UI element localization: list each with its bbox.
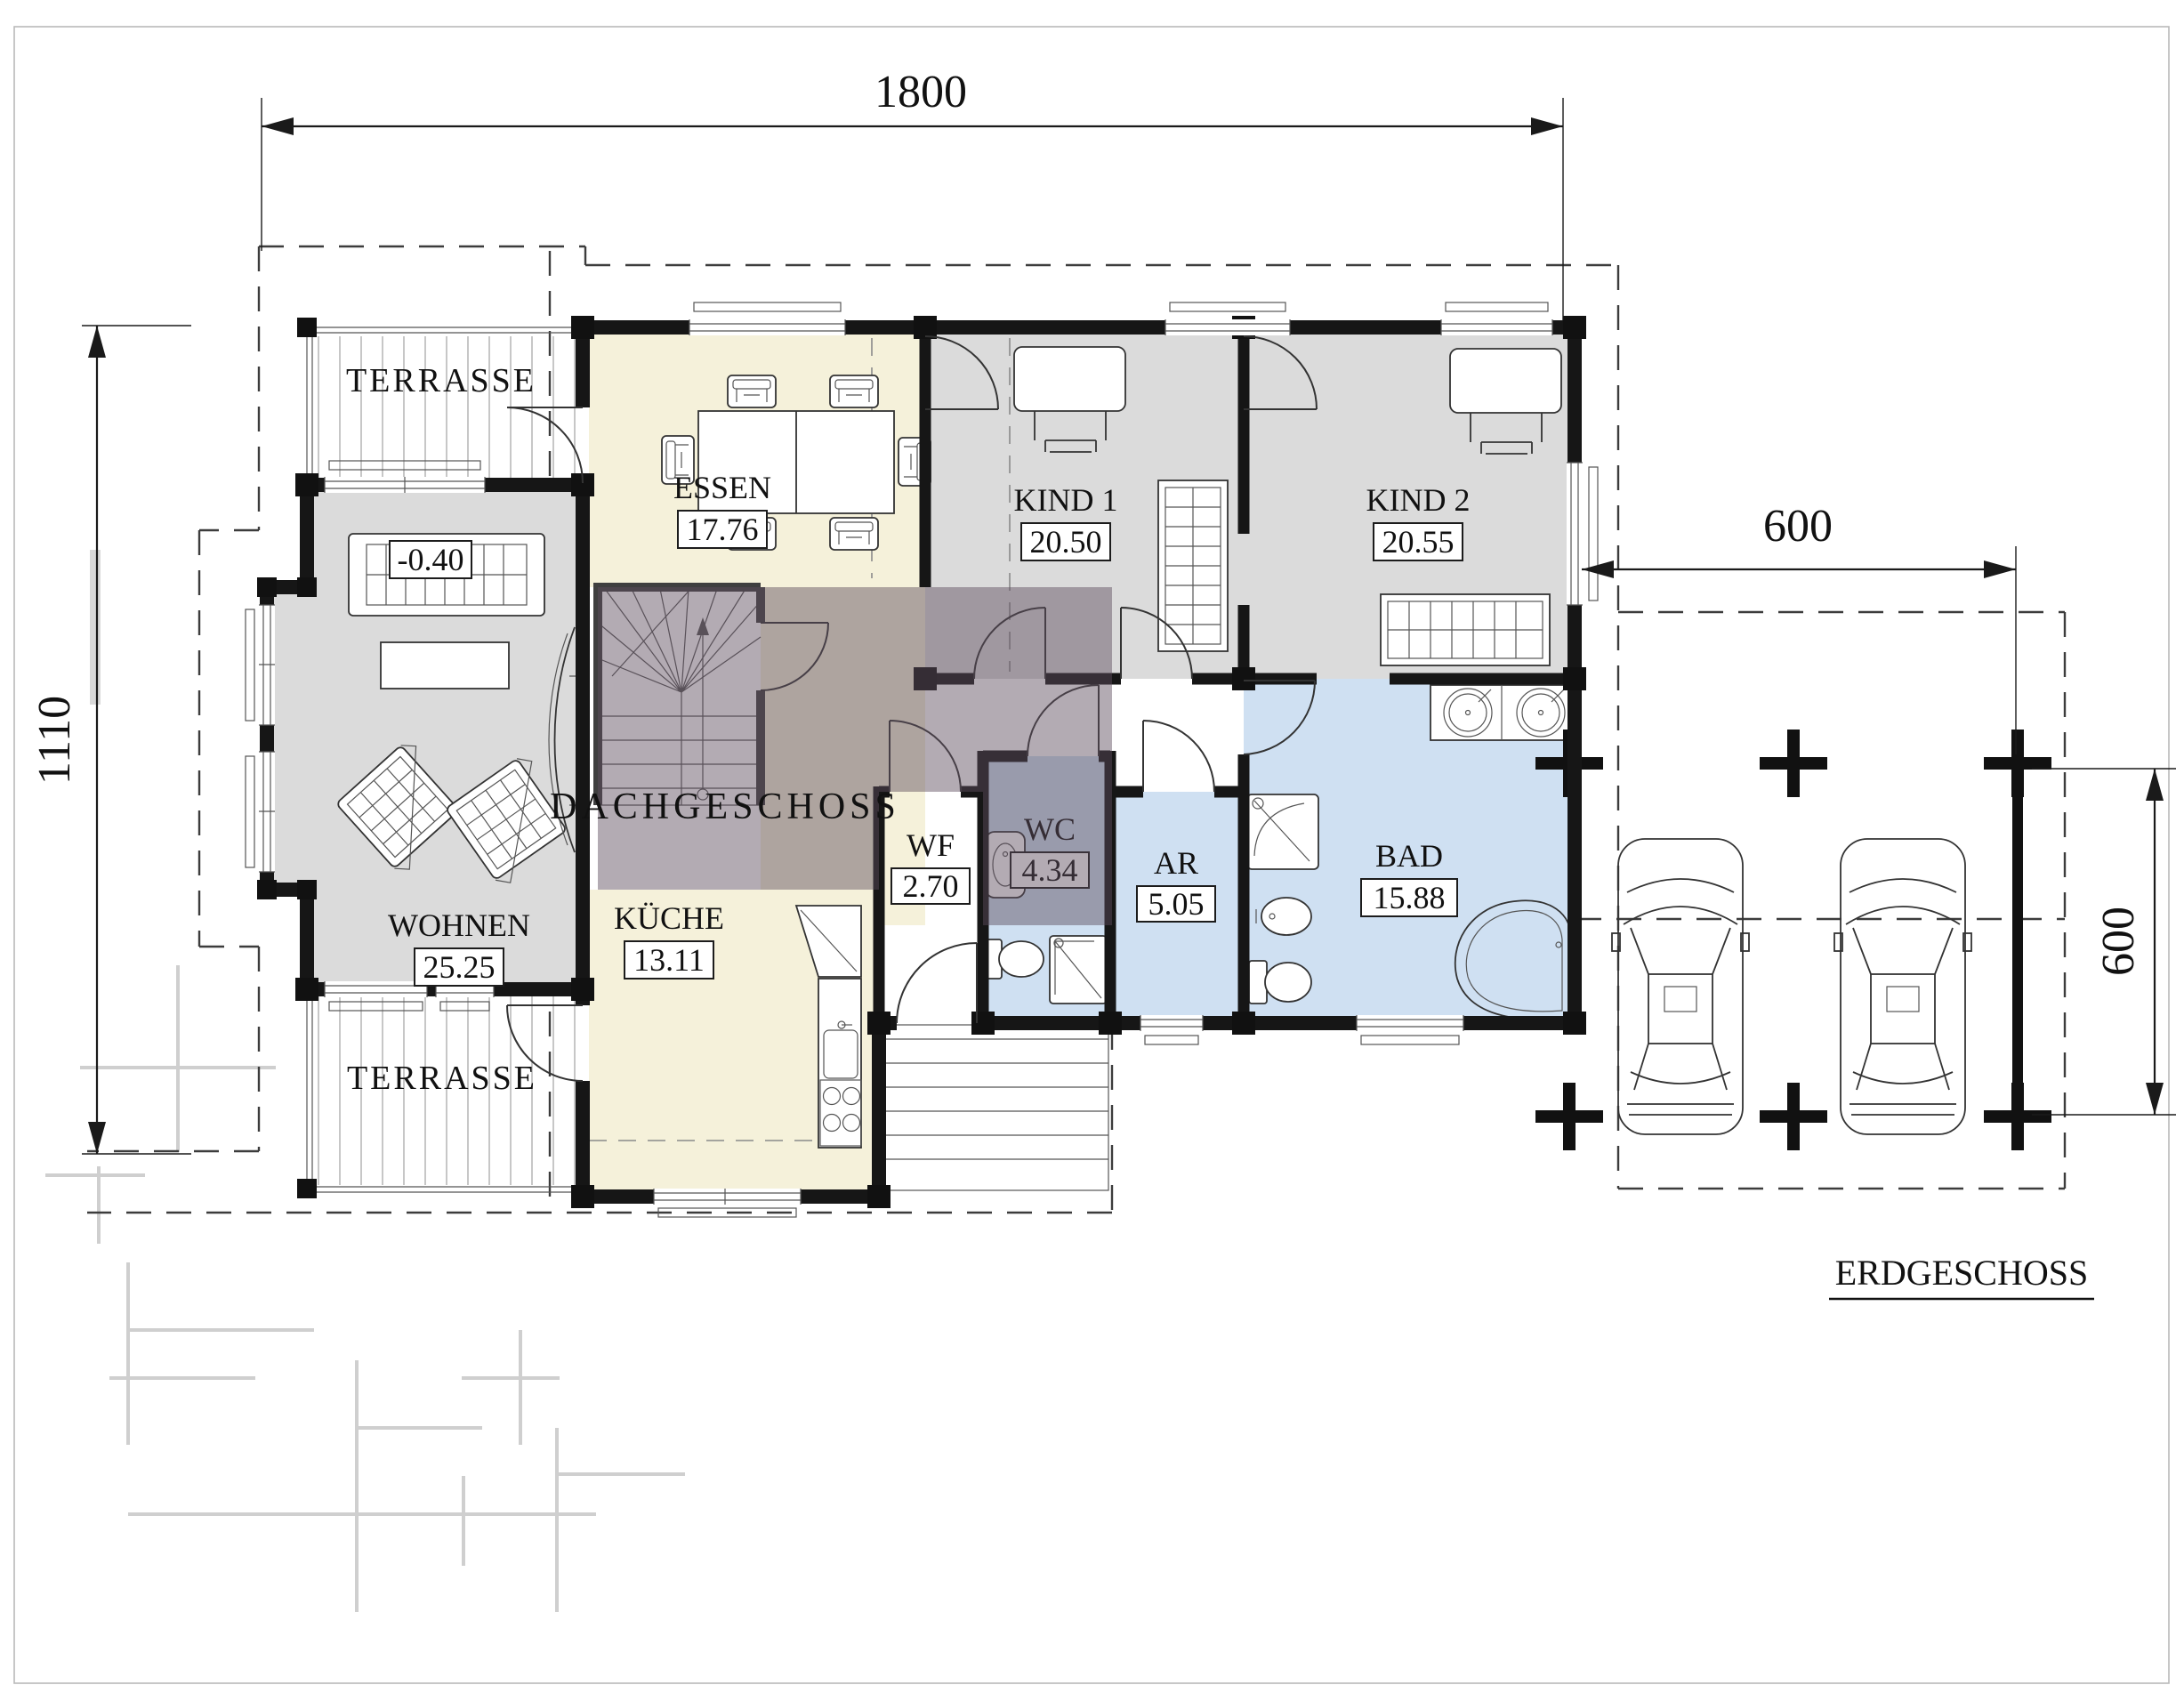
svg-text:20.55: 20.55 [1382,524,1455,560]
svg-text:1110: 1110 [29,696,80,785]
window [1165,302,1290,335]
svg-text:KÜCHE: KÜCHE [614,900,724,936]
dimension-1110: 1110 [29,326,191,1154]
overlay-label: DACHGESCHOSS [550,786,900,827]
window [1567,463,1598,605]
floor-title: ERDGESCHOSS [1829,1253,2094,1299]
svg-text:AR: AR [1154,845,1198,881]
dimension-1800: 1800 [262,67,1563,320]
svg-text:KIND 1: KIND 1 [1014,482,1118,518]
carport-outline-dashed [1576,612,2065,1189]
carport [1535,730,2051,1150]
svg-text:17.76: 17.76 [687,512,759,547]
svg-text:1800: 1800 [874,67,967,117]
svg-text:600: 600 [1763,501,1833,552]
svg-text:WOHNEN: WOHNEN [388,907,530,943]
svg-text:-0.40: -0.40 [398,542,464,577]
window [1441,302,1552,335]
window [246,752,275,872]
car [1834,839,1971,1134]
svg-text:KIND 2: KIND 2 [1366,482,1471,518]
terrace-top-label: TERRASSE [346,362,536,399]
window [689,302,845,335]
window [1357,1015,1463,1044]
dimension-600-top: 600 [1582,501,2016,754]
svg-text:5.05: 5.05 [1148,886,1205,922]
window [1140,1015,1203,1044]
level-marker: -0.40 [390,541,471,578]
carport-posts [1535,730,2051,1150]
svg-text:600: 600 [2093,907,2144,976]
entry-steps [881,1025,1108,1190]
window [246,605,275,725]
dimension-600-right: 600 [2032,769,2176,1115]
window [325,461,485,493]
svg-text:13.11: 13.11 [633,942,705,978]
terrace-bottom-label: TERRASSE [347,1060,537,1097]
svg-text:WF: WF [907,827,955,863]
svg-text:20.50: 20.50 [1030,524,1102,560]
svg-text:2.70: 2.70 [903,868,959,904]
svg-text:ERDGESCHOSS: ERDGESCHOSS [1835,1253,2089,1293]
svg-text:25.25: 25.25 [423,949,496,985]
floor-plan: WC 4.34 DACHGESCHOSS TERRASSE TERRASSE -… [0,0,2184,1693]
svg-text:15.88: 15.88 [1374,880,1446,915]
car [1612,839,1749,1134]
dachgeschoss-overlay [598,587,1112,925]
svg-text:ESSEN: ESSEN [673,470,771,505]
svg-text:BAD: BAD [1375,838,1443,874]
